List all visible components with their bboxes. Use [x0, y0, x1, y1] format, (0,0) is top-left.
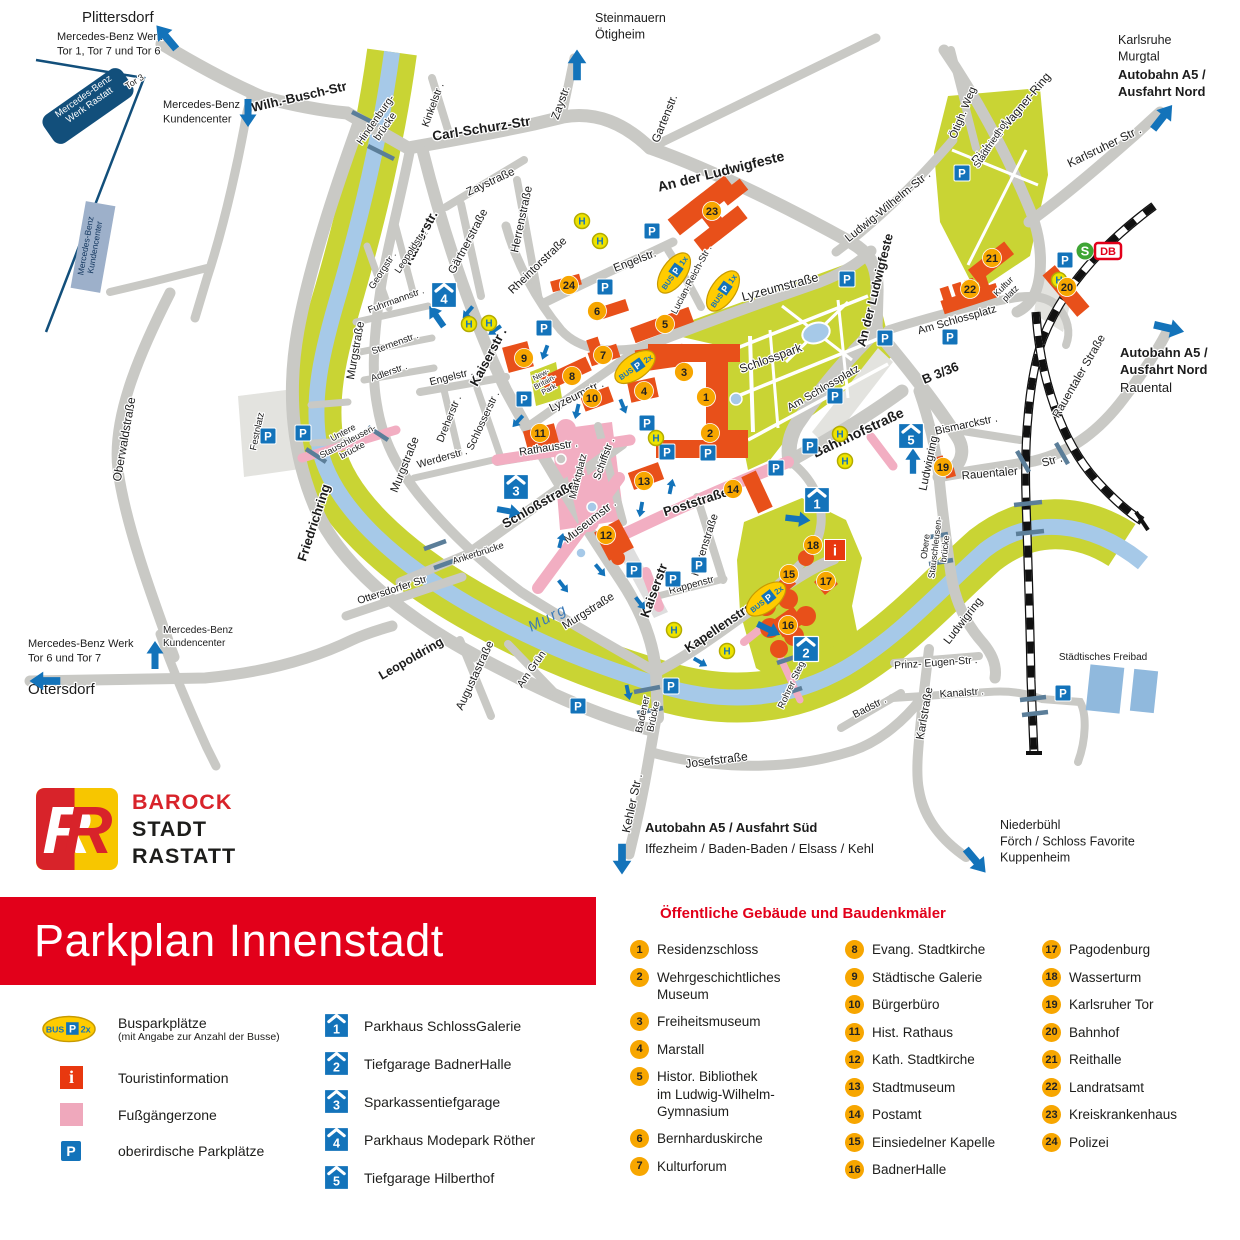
- parking-icon: P: [768, 460, 784, 476]
- svg-text:6: 6: [594, 306, 600, 318]
- legend-tourist-row: i Touristinformation: [60, 1066, 229, 1089]
- poi-marker: 10: [583, 389, 602, 408]
- building-name-label: Bernharduskirche: [657, 1129, 763, 1148]
- svg-text:2: 2: [333, 1061, 340, 1075]
- building-number-badge: 21: [1042, 1050, 1061, 1069]
- garage-marker: 1: [805, 488, 830, 513]
- poi-marker: 24: [560, 276, 579, 295]
- building-number-badge: 10: [845, 995, 864, 1014]
- poi-marker: 18: [804, 536, 823, 555]
- page-title: Parkplan Innenstadt: [34, 915, 444, 967]
- svg-text:12: 12: [600, 530, 612, 542]
- bus-stop-icon: H: [482, 316, 497, 331]
- building-name-label: Einsiedelner Kapelle: [872, 1133, 995, 1152]
- svg-text:H: H: [596, 237, 603, 248]
- destination-label: Plittersdorf: [82, 9, 155, 26]
- bus-stop-icon: H: [833, 427, 848, 442]
- parking-icon: P: [954, 165, 970, 181]
- parking-icon: P: [663, 678, 679, 694]
- direction-arrow-icon: [571, 403, 584, 420]
- building-number-badge: 14: [845, 1105, 864, 1124]
- direction-arrow-icon: [665, 478, 677, 495]
- building-name-label: Marstall: [657, 1040, 704, 1059]
- destination-label: Iffezheim / Baden-Baden / Elsass / Kehl: [645, 841, 874, 856]
- poi-marker: 11: [531, 424, 550, 443]
- building-number-badge: 8: [845, 940, 864, 959]
- building-name-label: BadnerHalle: [872, 1160, 946, 1179]
- street-label: Ludwig-Wilhelm-Str .: [843, 169, 933, 245]
- db-logo-icon: DB: [1095, 243, 1121, 259]
- legend-bus-row: BUS P 2x Busparkplätze (mit Angabe zur A…: [42, 1015, 280, 1043]
- poi-marker: 6: [588, 302, 607, 321]
- legend-parking-label: oberirdische Parkplätze: [118, 1143, 264, 1159]
- svg-text:P: P: [648, 227, 656, 239]
- garage-legend: 1Parkhaus SchlossGalerie2Tiefgarage Badn…: [323, 1012, 535, 1202]
- poi-marker: 8: [563, 367, 582, 386]
- garage-legend-row: 4Parkhaus Modepark Röther: [323, 1126, 535, 1153]
- garage-marker: 2: [794, 637, 819, 662]
- building-list-item: 1Residenzschloss: [630, 940, 835, 959]
- building-number-badge: 11: [845, 1023, 864, 1042]
- parking-icon: P: [691, 557, 707, 573]
- building-number-badge: 6: [630, 1129, 649, 1148]
- destination-label: Mercedes-BenzKundencenter: [163, 99, 240, 125]
- building-name-label: Postamt: [872, 1105, 922, 1124]
- garage-legend-row: 1Parkhaus SchlossGalerie: [323, 1012, 535, 1039]
- parking-icon: P: [700, 445, 716, 461]
- svg-text:17: 17: [820, 576, 832, 588]
- building-list-item: 8Evang. Stadtkirche: [845, 940, 1050, 959]
- garage-marker: 3: [504, 475, 529, 500]
- parking-icon: P: [626, 562, 642, 578]
- svg-text:BUS: BUS: [46, 1024, 65, 1034]
- building-list-item: 21Reithalle: [1042, 1050, 1240, 1069]
- poi-marker: 17: [817, 572, 836, 591]
- svg-text:P: P: [540, 324, 548, 336]
- building-name-label: Hist. Rathaus: [872, 1023, 953, 1042]
- building-list-item: 19Karlsruher Tor: [1042, 995, 1240, 1014]
- svg-text:4: 4: [641, 386, 648, 398]
- destination-label: Mercedes-Benz WerkTor 6 und Tor 7: [28, 638, 134, 664]
- svg-text:1: 1: [333, 1023, 340, 1037]
- bus-stop-icon: H: [462, 317, 477, 332]
- buildings-list-title: Öffentliche Gebäude und Baudenkmäler: [660, 905, 946, 922]
- svg-text:P: P: [299, 429, 307, 441]
- rastatt-logo-text: BAROCK STADT RASTATT: [132, 789, 236, 870]
- parkplan-rastatt-page: { "header": { "title": "Parkplan Innenst…: [0, 0, 1240, 1240]
- building-number-badge: 15: [845, 1133, 864, 1152]
- poi-marker: 23: [703, 202, 722, 221]
- destination-label: NiederbühlFörch / Schloss FavoriteKuppen…: [1000, 818, 1135, 865]
- building-list-item: 15Einsiedelner Kapelle: [845, 1133, 1050, 1152]
- garage-icon: 5: [323, 1164, 350, 1191]
- svg-text:2: 2: [802, 646, 809, 661]
- garage-icon: 4: [323, 1126, 350, 1153]
- bus-stop-icon: H: [720, 644, 735, 659]
- building-name-label: Landratsamt: [1069, 1078, 1144, 1097]
- svg-text:P: P: [946, 333, 954, 345]
- svg-text:P: P: [806, 442, 814, 454]
- logo-line-2: STADT: [132, 816, 236, 843]
- svg-text:13: 13: [638, 476, 650, 488]
- svg-text:P: P: [663, 448, 671, 460]
- garage-legend-label: Parkhaus SchlossGalerie: [364, 1018, 521, 1034]
- garage-marker: 5: [899, 424, 924, 449]
- building-list-item: 23Kreiskrankenhaus: [1042, 1105, 1240, 1124]
- building-name-label: Städtische Galerie: [872, 968, 982, 987]
- building-list-item: 16BadnerHalle: [845, 1160, 1050, 1179]
- parking-icon: P: [1055, 685, 1071, 701]
- garage-icon: 3: [323, 1088, 350, 1115]
- svg-text:H: H: [836, 430, 843, 441]
- garage-marker: 4: [432, 283, 457, 308]
- street-label: Leopoldring: [376, 634, 446, 682]
- legend-pedestrian-label: Fußgängerzone: [118, 1107, 217, 1123]
- parking-icon: P: [877, 330, 893, 346]
- poi-marker: 1: [697, 388, 716, 407]
- building-list-item: 12Kath. Stadtkirche: [845, 1050, 1050, 1069]
- building-number-badge: 18: [1042, 968, 1061, 987]
- parking-icon: P: [665, 571, 681, 587]
- svg-text:1: 1: [703, 392, 709, 404]
- legend-bus-label: Busparkplätze: [118, 1015, 280, 1031]
- buildings-column-1: 1Residenzschloss2Wehrgeschichtliches Mus…: [630, 940, 835, 1184]
- svg-text:H: H: [723, 647, 730, 658]
- city-logo: R R BAROCK STADT RASTATT: [36, 788, 236, 870]
- svg-text:16: 16: [782, 620, 794, 632]
- direction-arrow-icon: [905, 449, 920, 474]
- building-name-label: Kulturforum: [657, 1157, 727, 1176]
- poi-marker: 15: [780, 565, 799, 584]
- svg-text:DB: DB: [1100, 246, 1116, 258]
- building-number-badge: 3: [630, 1012, 649, 1031]
- rastatt-logo-icon: R R: [36, 788, 118, 870]
- svg-text:4: 4: [333, 1137, 340, 1151]
- garage-legend-row: 2Tiefgarage BadnerHalle: [323, 1050, 535, 1077]
- street-label: Engelstr.: [612, 248, 658, 275]
- svg-text:4: 4: [440, 292, 448, 307]
- bus-stop-icon: H: [667, 623, 682, 638]
- building-list-item: 7Kulturforum: [630, 1157, 835, 1176]
- bus-stop-icon: H: [575, 214, 590, 229]
- building-list-item: 6Bernharduskirche: [630, 1129, 835, 1148]
- garage-legend-label: Sparkassentiefgarage: [364, 1094, 500, 1110]
- street-label: B 3/36: [920, 359, 961, 387]
- poi-marker: 21: [983, 249, 1002, 268]
- building-number-badge: 19: [1042, 995, 1061, 1014]
- building-number-badge: 2: [630, 968, 649, 987]
- poi-marker: 3: [675, 363, 694, 382]
- svg-text:20: 20: [1061, 282, 1073, 294]
- svg-text:3: 3: [681, 367, 687, 379]
- street-label: Prinz- Eugen-Str .: [894, 654, 978, 672]
- poi-marker: 5: [656, 315, 675, 334]
- street-label: Badstr .: [851, 694, 889, 721]
- parking-icon: P: [639, 415, 655, 431]
- building-number-badge: 4: [630, 1040, 649, 1059]
- building-number-badge: 23: [1042, 1105, 1061, 1124]
- building-list-item: 5Histor. Bibliothek im Ludwig-Wilhelm- G…: [630, 1067, 835, 1121]
- parking-icon: P: [839, 271, 855, 287]
- poi-marker: 12: [597, 526, 616, 545]
- svg-text:7: 7: [600, 350, 606, 362]
- svg-text:10: 10: [586, 393, 598, 405]
- direction-arrow-icon: [635, 501, 647, 518]
- parking-icon: P: [516, 391, 532, 407]
- svg-text:P: P: [601, 283, 609, 295]
- destination-label: KarlsruheMurgtal: [1118, 33, 1172, 63]
- building-number-badge: 17: [1042, 940, 1061, 959]
- svg-text:P: P: [772, 464, 780, 476]
- building-list-item: 20Bahnhof: [1042, 1023, 1240, 1042]
- poi-marker: 4: [635, 382, 654, 401]
- svg-text:P: P: [1059, 689, 1067, 701]
- parking-icon: P: [1057, 252, 1073, 268]
- tourist-info-icon: i: [60, 1066, 83, 1089]
- surface-parking-icon: P: [61, 1141, 81, 1161]
- destination-label: Mercedes-Benz WerkTor 1, Tor 7 und Tor 6: [57, 31, 163, 57]
- building-number-badge: 22: [1042, 1078, 1061, 1097]
- garage-legend-label: Tiefgarage Hilberthof: [364, 1170, 494, 1186]
- svg-text:R: R: [64, 793, 113, 868]
- svg-text:23: 23: [706, 206, 718, 218]
- svg-text:H: H: [652, 434, 659, 445]
- building-name-label: Wehrgeschichtliches Museum: [657, 968, 781, 1004]
- street-label: Murgstraße: [560, 591, 616, 632]
- svg-text:21: 21: [986, 253, 998, 265]
- destination-label: Rauental: [1120, 380, 1172, 395]
- poi-marker: 2: [701, 424, 720, 443]
- svg-text:5: 5: [333, 1175, 340, 1189]
- svg-text:5: 5: [662, 319, 668, 331]
- building-name-label: Kreiskrankenhaus: [1069, 1105, 1177, 1124]
- logo-line-1: BAROCK: [132, 789, 236, 816]
- svg-text:P: P: [643, 419, 651, 431]
- parking-icon: P: [827, 388, 843, 404]
- building-name-label: Stadtmuseum: [872, 1078, 955, 1097]
- svg-text:8: 8: [569, 371, 575, 383]
- parking-icon: P: [536, 320, 552, 336]
- garage-marker: 1: [324, 1013, 348, 1037]
- svg-text:H: H: [841, 457, 848, 468]
- direction-arrow-icon: [691, 654, 709, 670]
- building-number-badge: 20: [1042, 1023, 1061, 1042]
- freibad-buildings: [1086, 664, 1158, 713]
- parking-icon: P: [295, 425, 311, 441]
- garage-legend-label: Tiefgarage BadnerHalle: [364, 1056, 511, 1072]
- parking-icon: P: [802, 438, 818, 454]
- poi-marker: 19: [934, 458, 953, 477]
- building-number-badge: 16: [845, 1160, 864, 1179]
- garage-legend-label: Parkhaus Modepark Röther: [364, 1132, 535, 1148]
- svg-text:3: 3: [512, 484, 519, 499]
- legend-bus-sublabel: (mit Angabe zur Anzahl der Busse): [118, 1031, 280, 1043]
- building-list-item: 14Postamt: [845, 1105, 1050, 1124]
- parking-icon: P: [260, 428, 276, 444]
- garage-legend-row: 5Tiefgarage Hilberthof: [323, 1164, 535, 1191]
- bus-parking-icon: BUS P 2x: [42, 1015, 96, 1043]
- svg-text:H: H: [578, 217, 585, 228]
- garage-legend-row: 3Sparkassentiefgarage: [323, 1088, 535, 1115]
- svg-text:5: 5: [907, 433, 914, 448]
- building-list-item: 17Pagodenburg: [1042, 940, 1240, 959]
- building-name-label: Wasserturm: [1069, 968, 1141, 987]
- poi-marker: 13: [635, 472, 654, 491]
- direction-arrow-icon: [555, 577, 572, 595]
- svg-text:1: 1: [813, 497, 820, 512]
- direction-arrow-icon: [538, 344, 552, 362]
- parking-icon: P: [597, 279, 613, 295]
- svg-text:14: 14: [727, 484, 740, 496]
- building-name-label: Pagodenburg: [1069, 940, 1150, 959]
- svg-text:24: 24: [563, 280, 576, 292]
- svg-text:P: P: [1061, 256, 1069, 268]
- building-list-item: 18Wasserturm: [1042, 968, 1240, 987]
- bus-stop-icon: H: [649, 431, 664, 446]
- parking-icon: P: [644, 223, 660, 239]
- bus-stop-icon: H: [838, 454, 853, 469]
- svg-text:P: P: [958, 169, 966, 181]
- direction-arrow-icon: [616, 398, 630, 416]
- garage-marker: 3: [324, 1089, 348, 1113]
- garage-icon: 2: [323, 1050, 350, 1077]
- svg-text:P: P: [574, 702, 582, 714]
- direction-arrow-icon: [1152, 316, 1186, 341]
- building-name-label: Evang. Stadtkirche: [872, 940, 985, 959]
- building-list-item: 24Polizei: [1042, 1133, 1240, 1152]
- svg-text:P: P: [520, 395, 528, 407]
- garage-marker: 5: [324, 1165, 348, 1189]
- destination-label: Autobahn A5 /Ausfahrt Nord: [1120, 345, 1208, 377]
- street-label: Zaystraße: [465, 166, 517, 199]
- svg-text:2: 2: [707, 428, 713, 440]
- bus-stop-icon: H: [593, 234, 608, 249]
- building-name-label: Bürgerbüro: [872, 995, 940, 1014]
- garage-marker: 2: [324, 1051, 348, 1075]
- building-list-item: 4Marstall: [630, 1040, 835, 1059]
- tourist-info-icon: i: [825, 540, 846, 561]
- building-number-badge: 7: [630, 1157, 649, 1176]
- building-number-badge: 5: [630, 1067, 649, 1086]
- svg-text:P: P: [704, 449, 712, 461]
- building-name-label: Residenzschloss: [657, 940, 758, 959]
- parking-icon: P: [659, 444, 675, 460]
- svg-text:H: H: [485, 319, 492, 330]
- destination-label: Mercedes-BenzKundencenter: [163, 625, 233, 649]
- svg-text:P: P: [630, 566, 638, 578]
- svg-text:P: P: [669, 575, 677, 587]
- building-name-label: Freiheitsmuseum: [657, 1012, 761, 1031]
- building-list-item: 9Städtische Galerie: [845, 968, 1050, 987]
- street-label: Rauentaler Straße: [1051, 333, 1108, 420]
- building-number-badge: 24: [1042, 1133, 1061, 1152]
- poi-marker: 9: [515, 349, 534, 368]
- svg-text:P: P: [881, 334, 889, 346]
- sbahn-icon: S: [1076, 242, 1094, 260]
- svg-text:H: H: [465, 320, 472, 331]
- building-name-label: Polizei: [1069, 1133, 1109, 1152]
- svg-text:3: 3: [333, 1099, 340, 1113]
- building-number-badge: 1: [630, 940, 649, 959]
- building-name-label: Kath. Stadtkirche: [872, 1050, 975, 1069]
- building-list-item: 13Stadtmuseum: [845, 1078, 1050, 1097]
- svg-text:22: 22: [964, 284, 976, 296]
- building-list-item: 2Wehrgeschichtliches Museum: [630, 968, 835, 1004]
- pedestrian-zone-icon: [60, 1103, 83, 1126]
- svg-text:P: P: [843, 275, 851, 287]
- svg-text:11: 11: [534, 428, 546, 440]
- svg-text:9: 9: [521, 353, 527, 365]
- svg-text:2x: 2x: [81, 1024, 92, 1034]
- building-list-item: 22Landratsamt: [1042, 1078, 1240, 1097]
- svg-text:19: 19: [937, 462, 949, 474]
- logo-line-3: RASTATT: [132, 843, 236, 870]
- buildings-column-3: 17Pagodenburg18Wasserturm19Karlsruher To…: [1042, 940, 1240, 1160]
- svg-text:H: H: [670, 626, 677, 637]
- garage-icon: 1: [323, 1012, 350, 1039]
- poi-marker: 22: [961, 280, 980, 299]
- building-number-badge: 9: [845, 968, 864, 987]
- parking-icon: P: [570, 698, 586, 714]
- svg-text:S: S: [1081, 244, 1090, 259]
- legend-tourist-label: Touristinformation: [118, 1070, 229, 1086]
- street-label: Dreherstr .: [434, 394, 464, 444]
- svg-text:P: P: [831, 392, 839, 404]
- svg-text:P: P: [69, 1023, 76, 1035]
- poi-marker: 7: [594, 346, 613, 365]
- street-label: Städtisches Freibad: [1059, 652, 1147, 663]
- destination-label: SteinmauernÖtigheim: [595, 11, 666, 41]
- building-name-label: Histor. Bibliothek im Ludwig-Wilhelm- Gy…: [657, 1067, 775, 1121]
- building-name-label: Karlsruher Tor: [1069, 995, 1154, 1014]
- svg-text:18: 18: [807, 540, 819, 552]
- building-list-item: 11Hist. Rathaus: [845, 1023, 1050, 1042]
- legend-parking-row: P oberirdische Parkplätze: [61, 1141, 264, 1161]
- svg-text:P: P: [667, 682, 675, 694]
- building-name-label: Reithalle: [1069, 1050, 1122, 1069]
- poi-marker: 20: [1058, 278, 1077, 297]
- destination-label: Autobahn A5 / Ausfahrt Süd: [645, 820, 817, 835]
- destination-label: Autobahn A5 /Ausfahrt Nord: [1118, 67, 1206, 99]
- building-list-item: 10Bürgerbüro: [845, 995, 1050, 1014]
- svg-text:P: P: [264, 432, 272, 444]
- svg-text:P: P: [695, 561, 703, 573]
- building-name-label: Bahnhof: [1069, 1023, 1119, 1042]
- poi-marker: 16: [779, 616, 798, 635]
- legend-pedestrian-row: Fußgängerzone: [60, 1103, 217, 1126]
- buildings-column-2: 8Evang. Stadtkirche9Städtische Galerie10…: [845, 940, 1050, 1188]
- title-bar: Parkplan Innenstadt: [0, 897, 596, 985]
- garage-marker: 4: [324, 1127, 348, 1151]
- svg-text:i: i: [833, 543, 837, 560]
- svg-text:15: 15: [783, 569, 795, 581]
- building-number-badge: 12: [845, 1050, 864, 1069]
- street-label: Kanalstr .: [939, 685, 984, 700]
- building-list-item: 3Freiheitsmuseum: [630, 1012, 835, 1031]
- poi-marker: 14: [724, 480, 743, 499]
- parking-icon: P: [942, 329, 958, 345]
- building-number-badge: 13: [845, 1078, 864, 1097]
